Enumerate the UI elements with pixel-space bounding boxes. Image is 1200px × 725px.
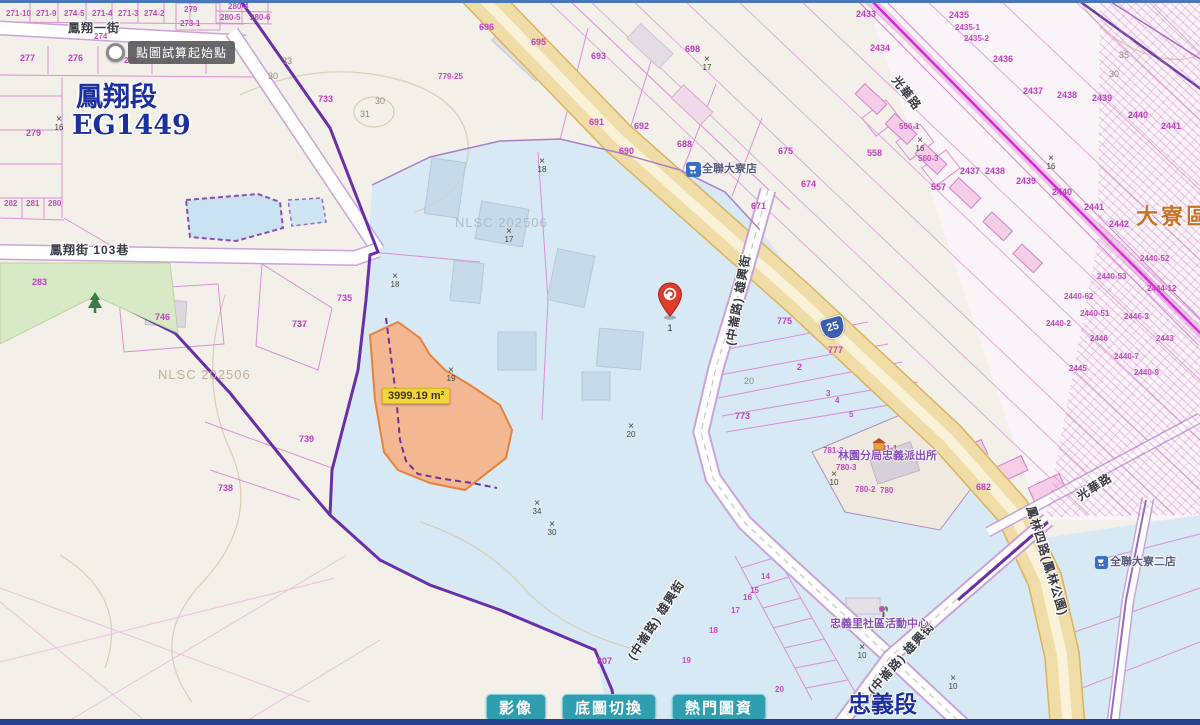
map-canvas[interactable]: 271-10271-9274-5271-4271-3274-2279273-12… <box>0 0 1200 725</box>
imagery-button[interactable]: 影像 <box>486 694 546 721</box>
tree-icon <box>86 292 104 316</box>
pin-number-label: 1 <box>664 323 676 333</box>
shopping-cart-icon <box>686 162 701 177</box>
community-center-icon <box>878 604 890 617</box>
bottom-toolbar: 影像底圖切換熱門圖資 <box>486 694 766 721</box>
map-linework <box>0 0 1200 725</box>
shopping-cart-icon <box>1095 556 1108 569</box>
top-border-line <box>0 0 1200 3</box>
police-station-icon <box>872 438 886 451</box>
popular-layers-button[interactable]: 熱門圖資 <box>672 694 766 721</box>
nlsc-watermark: NLSC 202506 <box>158 368 251 381</box>
start-point-tooltip: 點圖試算起始點 <box>128 41 235 64</box>
map-pin[interactable] <box>657 282 683 322</box>
nlsc-watermark: NLSC 202506 <box>455 216 548 229</box>
basemap-switch-button[interactable]: 底圖切換 <box>562 694 656 721</box>
bottom-status-bar <box>0 719 1200 725</box>
parcel-area-label: 3999.19 m² <box>382 388 450 404</box>
start-point-marker[interactable] <box>106 43 125 62</box>
